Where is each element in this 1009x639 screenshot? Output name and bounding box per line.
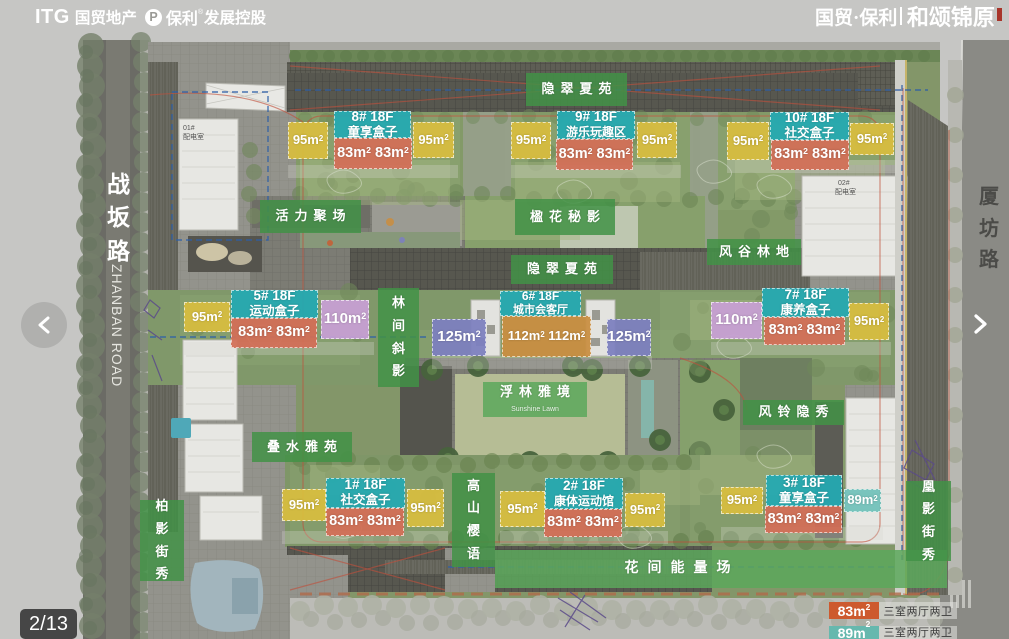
svg-text:配电室: 配电室 — [183, 132, 204, 141]
svg-text:01#: 01# — [183, 125, 195, 132]
svg-text:配电室: 配电室 — [835, 187, 856, 196]
svg-text:02#: 02# — [838, 180, 850, 187]
